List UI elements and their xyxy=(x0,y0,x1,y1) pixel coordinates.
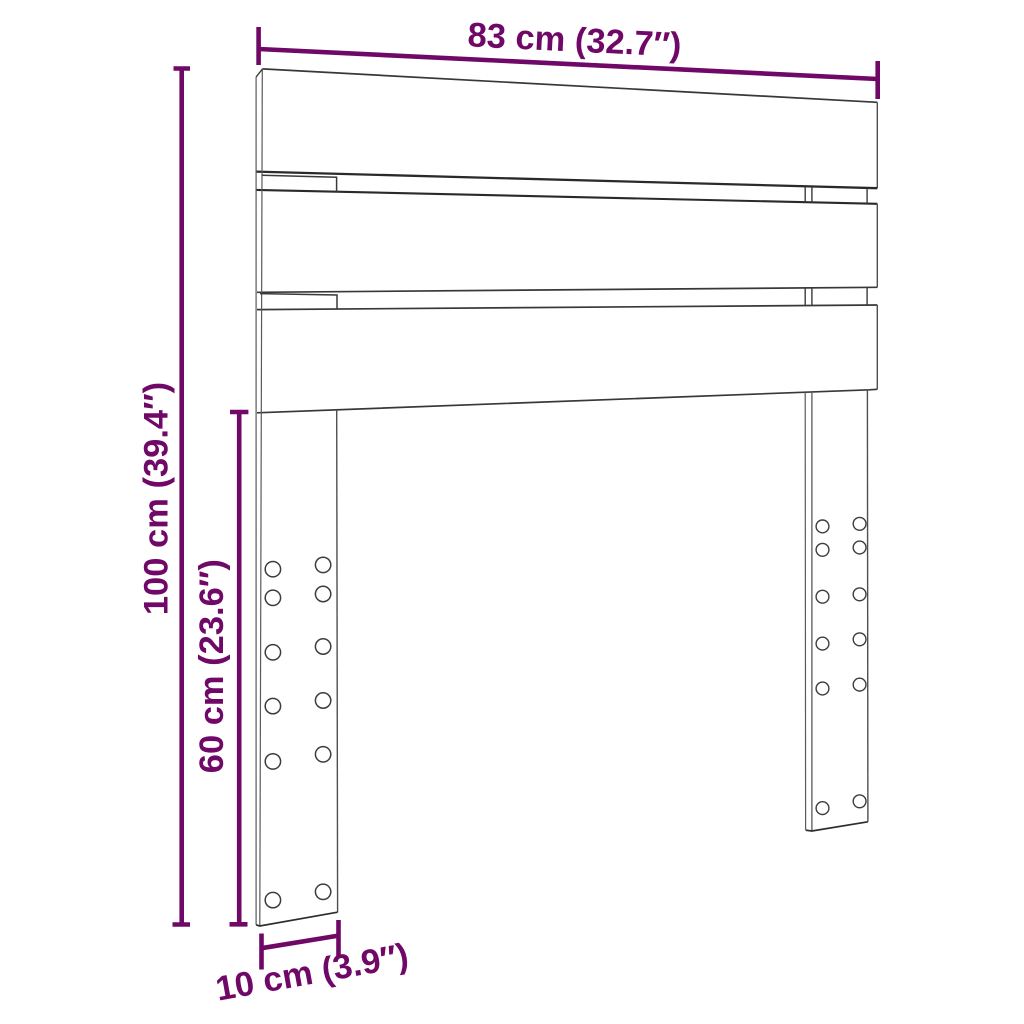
svg-text:60 cm (23.6″): 60 cm (23.6″) xyxy=(193,559,231,773)
svg-text:100 cm (39.4″): 100 cm (39.4″) xyxy=(138,382,176,615)
